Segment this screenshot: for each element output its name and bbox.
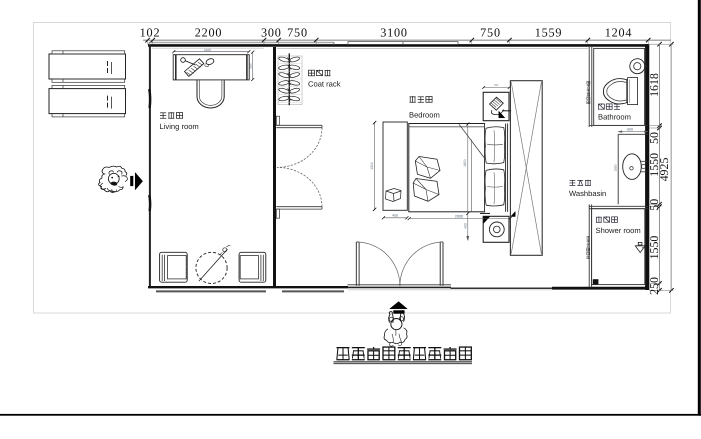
svg-text:1100: 1100 — [204, 48, 211, 52]
svg-text:1800: 1800 — [463, 159, 467, 167]
svg-text:1300: 1300 — [370, 162, 374, 170]
svg-text:Shower room: Shower room — [596, 226, 641, 235]
svg-text:102: 102 — [140, 26, 161, 40]
svg-text:1550: 1550 — [647, 236, 661, 260]
svg-text:50: 50 — [647, 132, 661, 144]
svg-text:1204: 1204 — [605, 26, 633, 40]
svg-text:400: 400 — [463, 223, 467, 229]
svg-text:Living room: Living room — [160, 122, 199, 131]
svg-text:700: 700 — [494, 84, 499, 87]
svg-text:300: 300 — [261, 26, 282, 40]
svg-text:2200: 2200 — [195, 26, 223, 40]
svg-text:4925: 4925 — [657, 158, 671, 182]
svg-text:750: 750 — [287, 26, 308, 40]
svg-text:1618: 1618 — [647, 73, 661, 97]
svg-text:550: 550 — [249, 63, 253, 68]
svg-text:2000: 2000 — [455, 214, 463, 218]
svg-text:3100: 3100 — [380, 26, 408, 40]
svg-text:Bedroom: Bedroom — [409, 111, 440, 120]
svg-text:750: 750 — [480, 26, 501, 40]
svg-text:250: 250 — [647, 277, 661, 295]
svg-text:Washbasin: Washbasin — [569, 189, 606, 198]
svg-text:1559: 1559 — [535, 26, 563, 40]
svg-text:600: 600 — [627, 127, 633, 131]
svg-text:450: 450 — [392, 214, 398, 218]
svg-text:Bathroom: Bathroom — [598, 112, 631, 121]
svg-text:50: 50 — [647, 199, 661, 211]
svg-text:Coat rack: Coat rack — [308, 79, 341, 88]
svg-text:1550: 1550 — [613, 164, 617, 171]
